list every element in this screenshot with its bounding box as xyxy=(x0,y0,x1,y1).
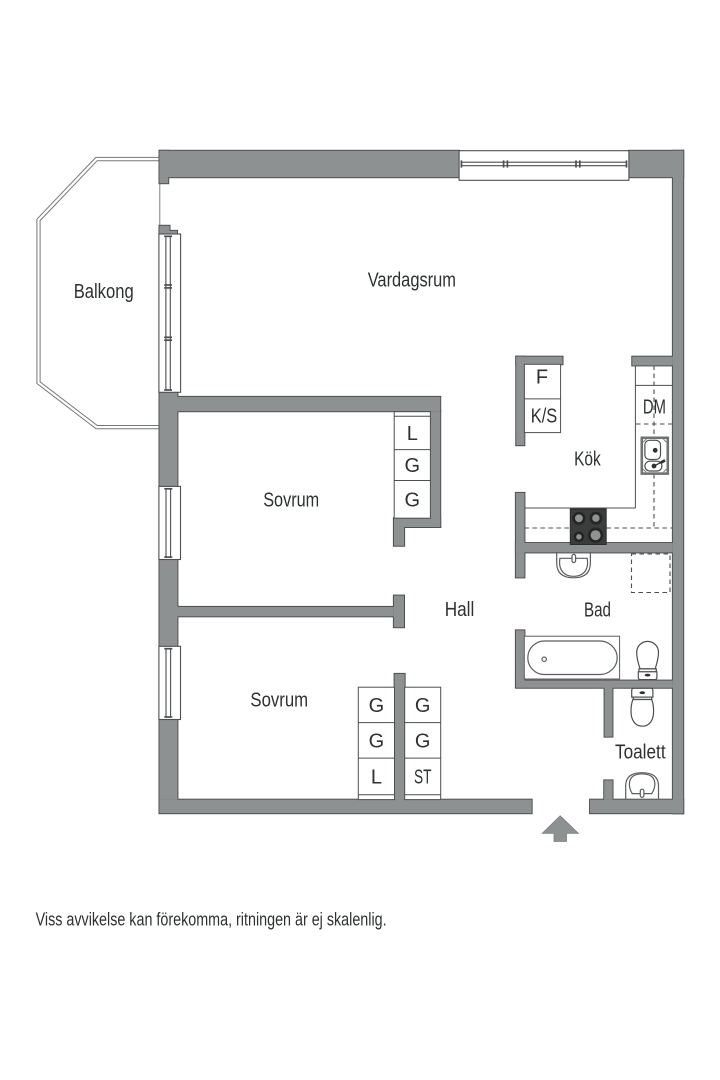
svg-text:ST: ST xyxy=(414,767,432,789)
svg-text:Kök: Kök xyxy=(574,449,601,471)
svg-text:DM: DM xyxy=(643,397,666,419)
svg-text:G: G xyxy=(405,455,421,477)
svg-text:G: G xyxy=(369,695,385,717)
svg-text:F: F xyxy=(536,367,548,389)
svg-text:K/S: K/S xyxy=(531,405,558,427)
svg-text:L: L xyxy=(371,767,382,789)
svg-text:Bad: Bad xyxy=(584,600,611,622)
svg-text:G: G xyxy=(369,731,385,753)
svg-text:Hall: Hall xyxy=(445,599,475,621)
svg-text:Viss avvikelse kan förekomma,: Viss avvikelse kan förekomma, ritningen … xyxy=(36,910,387,930)
svg-text:Sovrum: Sovrum xyxy=(250,689,308,711)
svg-text:G: G xyxy=(415,731,431,753)
svg-text:Vardagsrum: Vardagsrum xyxy=(368,270,456,292)
svg-text:Sovrum: Sovrum xyxy=(263,490,319,512)
svg-text:G: G xyxy=(405,490,421,512)
svg-text:Toalett: Toalett xyxy=(615,742,666,764)
svg-text:L: L xyxy=(407,423,418,445)
svg-text:Balkong: Balkong xyxy=(74,281,134,303)
svg-text:G: G xyxy=(415,695,431,717)
